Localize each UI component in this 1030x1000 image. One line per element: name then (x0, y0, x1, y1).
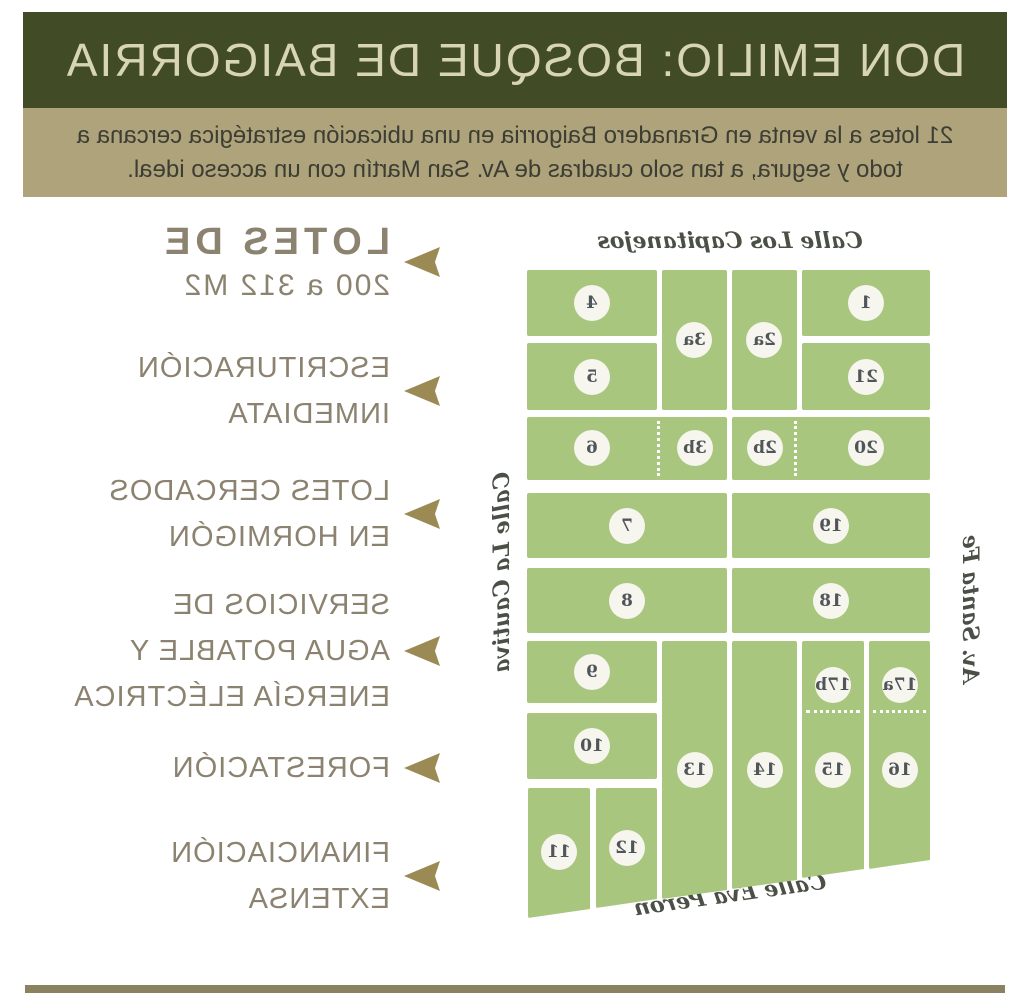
lot-18: 18 (732, 568, 930, 633)
street-label-capitanejos: Calle Los Capitanejos (580, 228, 880, 254)
page-title: DON EMILIO: BOSQUE DE BAIGORRIA (65, 33, 965, 87)
lot-badge: 6 (574, 430, 610, 466)
lot-badge: 2b (747, 430, 783, 466)
feature-text: LOTES CERCADOS EN HORMIGÓN (109, 468, 391, 560)
feature-text: ESCRITURACIÓN INMEDIATA (137, 345, 390, 437)
mirror-canvas: DON EMILIO: BOSQUE DE BAIGORRIA 21 lotes… (0, 0, 1030, 1000)
subtitle-line-1: 21 lotes a la venta en Granadero Baigorr… (77, 119, 954, 153)
flyer-page: DON EMILIO: BOSQUE DE BAIGORRIA 21 lotes… (0, 0, 1030, 1000)
lot-3a: 3a (662, 270, 727, 410)
feature-line: ESCRITURACIÓN (137, 345, 390, 391)
lot-13: 13 (662, 641, 727, 899)
feature-line: SERVICIOS DE (73, 582, 390, 628)
footer-rule (25, 985, 1005, 993)
lot-badge: 2a (747, 322, 783, 358)
lot-badge: 11 (541, 834, 577, 870)
lot-badge: 14 (747, 752, 783, 788)
feature-text: LOTES DE 200 a 312 M2 (160, 218, 390, 306)
bullet-arrow-icon (404, 753, 440, 783)
feature-line: ENERGÍA ELÉCTRICA (73, 674, 390, 720)
lot-badge: 1 (848, 285, 884, 321)
lot-badge: 4 (574, 285, 610, 321)
lot-band-3b-6: 3b 6 (527, 417, 727, 480)
feature-item-cercados: LOTES CERCADOS EN HORMIGÓN (109, 468, 441, 560)
lot-2a: 2a (732, 270, 797, 410)
lot-11: 11 (528, 788, 590, 918)
header-bar: DON EMILIO: BOSQUE DE BAIGORRIA (23, 12, 1007, 108)
feature-item-escrituracion: ESCRITURACIÓN INMEDIATA (137, 345, 440, 437)
lot-badge: 5 (574, 359, 610, 395)
feature-item-lot-size: LOTES DE 200 a 312 M2 (160, 218, 440, 306)
feature-line: EXTENSA (170, 876, 390, 922)
lot-badge: 21 (848, 359, 884, 395)
lot-col-17b-15: 17b 15 (802, 641, 864, 878)
feature-line: EN HORMIGÓN (109, 514, 391, 560)
lot-12: 12 (596, 788, 657, 908)
feature-line: FINANCIACIÓN (170, 830, 390, 876)
lot-8: 8 (527, 568, 727, 633)
bullet-arrow-icon (404, 636, 440, 666)
lot-badge: 15 (815, 752, 851, 788)
feature-text: FINANCIACIÓN EXTENSA (170, 830, 390, 922)
lot-7: 7 (527, 493, 727, 558)
lot-badge: 19 (813, 508, 849, 544)
bullet-arrow-icon (404, 499, 440, 529)
lot-band-20-2b: 20 2b (732, 417, 930, 480)
lot-21: 21 (802, 343, 930, 410)
feature-line: LOTES CERCADOS (109, 468, 391, 514)
dotted-divider (657, 421, 660, 476)
lot-9: 9 (527, 641, 657, 703)
lot-10: 10 (527, 713, 657, 779)
lot-19: 19 (732, 493, 930, 558)
lot-1: 1 (802, 270, 930, 336)
subtitle-bar: 21 lotes a la venta en Granadero Baigorr… (23, 108, 1007, 197)
lot-badge: 7 (609, 508, 645, 544)
feature-text: FORESTACIÓN (172, 745, 390, 791)
street-label-santa-fe: Av. Santa Fe (957, 524, 983, 694)
subtitle-line-2: todo y segura, a tan solo cuadras de Av.… (127, 153, 903, 187)
lot-badge: 13 (677, 752, 713, 788)
bullet-arrow-icon (404, 247, 440, 277)
lot-5: 5 (527, 343, 657, 410)
lot-4: 4 (527, 270, 657, 336)
lot-badge: 3b (677, 430, 713, 466)
feature-line: FORESTACIÓN (172, 745, 390, 791)
feature-line: INMEDIATA (137, 391, 390, 437)
lot-badge: 20 (848, 430, 884, 466)
lot-badge: 10 (574, 728, 610, 764)
street-label-cautiva: Calle La Cautiva (489, 472, 515, 642)
lot-badge: 9 (574, 654, 610, 690)
feature-item-financiacion: FINANCIACIÓN EXTENSA (170, 830, 440, 922)
feature-item-servicios: SERVICIOS DE AGUA POTABLE Y ENERGÍA ELÉC… (73, 582, 440, 720)
feature-line: 200 a 312 M2 (160, 266, 390, 306)
dotted-divider (873, 710, 926, 713)
bullet-arrow-icon (404, 861, 440, 891)
lot-badge: 3a (677, 322, 713, 358)
lot-col-17a-16: 17a 16 (869, 641, 930, 869)
dotted-divider (794, 421, 797, 476)
lot-badge: 17b (815, 667, 851, 703)
lot-badge: 16 (882, 752, 918, 788)
feature-line: AGUA POTABLE Y (73, 628, 390, 674)
lot-14: 14 (732, 641, 797, 889)
lot-badge: 18 (813, 583, 849, 619)
lot-badge: 17a (882, 667, 918, 703)
lot-badge: 8 (609, 583, 645, 619)
lot-badge: 12 (609, 830, 645, 866)
bullet-arrow-icon (404, 376, 440, 406)
feature-line: LOTES DE (160, 218, 390, 266)
feature-text: SERVICIOS DE AGUA POTABLE Y ENERGÍA ELÉC… (73, 582, 390, 720)
dotted-divider (806, 710, 860, 713)
feature-item-forestacion: FORESTACIÓN (172, 745, 440, 791)
